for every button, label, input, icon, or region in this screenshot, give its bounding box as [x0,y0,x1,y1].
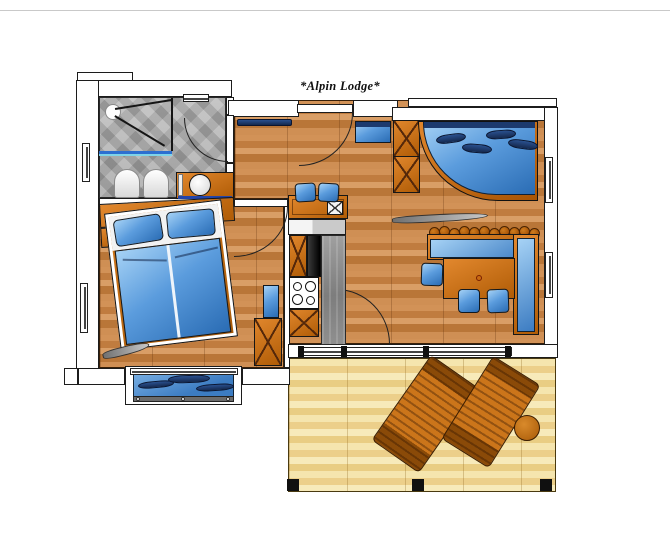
kitchen-cabinet [289,235,307,277]
bedroom-side-panel [263,285,279,318]
window-right-lower [545,252,553,298]
divider-line [0,10,670,11]
double-bed [104,199,238,350]
wall-bottomleft-stub [64,368,78,385]
entry-door-leaf [297,104,353,113]
kitchen-counter [288,219,346,235]
window-left-upper [82,143,90,182]
window-pane [132,371,236,373]
kitchen-cabinet [289,309,319,337]
wall-right [544,107,558,358]
kitchen-stool [295,182,317,202]
stove [289,277,319,309]
burner [293,282,302,291]
shower-glass-light [99,154,172,156]
kitchen-stool [318,182,340,202]
window-pane [302,351,509,353]
door-mat [237,119,292,126]
window-pane [86,147,88,179]
burner [305,281,316,292]
dining-chair [487,289,510,314]
wardrobe-cell [393,156,420,193]
corner-bench-side [513,234,539,335]
glass-post [341,346,347,357]
shelf-line [184,98,208,100]
burner [292,294,303,305]
railing-knob [181,397,185,401]
toilet [114,169,140,198]
sofa-pillow [508,138,539,151]
burner [306,296,315,305]
wardrobe [393,120,420,193]
terrace-post [412,479,424,491]
washbasin [189,174,211,196]
wall-topright-step [408,98,557,107]
side-table [514,415,540,441]
wall-left [76,80,99,385]
terrace-post [287,479,299,491]
duvet-fold [175,247,218,258]
bathroom-shelf [183,94,209,102]
dining-chair [421,263,444,287]
wall-entry-left [228,100,299,117]
wardrobe-cell [393,120,420,157]
sofa-pillow [462,143,493,155]
shower-edge-side [171,98,173,151]
sofa-back [424,122,535,128]
railing-knob [226,397,230,401]
table-appliance [327,201,343,215]
window-pane [549,256,551,294]
oven [307,235,321,277]
wall-bedroom-south-right [242,368,290,385]
terrace-post [540,479,552,491]
wall-top-living [392,107,545,121]
bidet [143,169,169,198]
glass-post [298,346,304,357]
table-knob [476,275,482,281]
bench-seat [517,238,535,332]
window-left-lower [80,283,88,333]
duvet [115,238,232,345]
vanity-towel [178,174,183,196]
sofa-pillow [436,132,467,145]
bedroom-door-leaf [234,199,288,207]
wall-bedroom-south-left [78,368,125,385]
pillow-right [166,208,216,239]
balcony-door-glass [130,368,238,375]
dining-chair [458,289,480,313]
window-right-upper [545,157,553,203]
floor-plan: *Alpin Lodge* [0,0,670,550]
glass-post [505,346,511,357]
window-pane [84,287,86,328]
bedroom-cabinet [254,318,282,366]
window-pane [549,161,551,199]
bench-back [356,122,390,127]
railing-knob [136,397,140,401]
plan-title: *Alpin Lodge* [275,79,405,94]
kitchen-wall [321,235,346,345]
glass-front-terrace [299,347,512,356]
entry-bench [355,121,391,143]
glass-post [423,346,429,357]
duvet-seam [166,245,180,338]
duvet-fold [123,259,167,261]
